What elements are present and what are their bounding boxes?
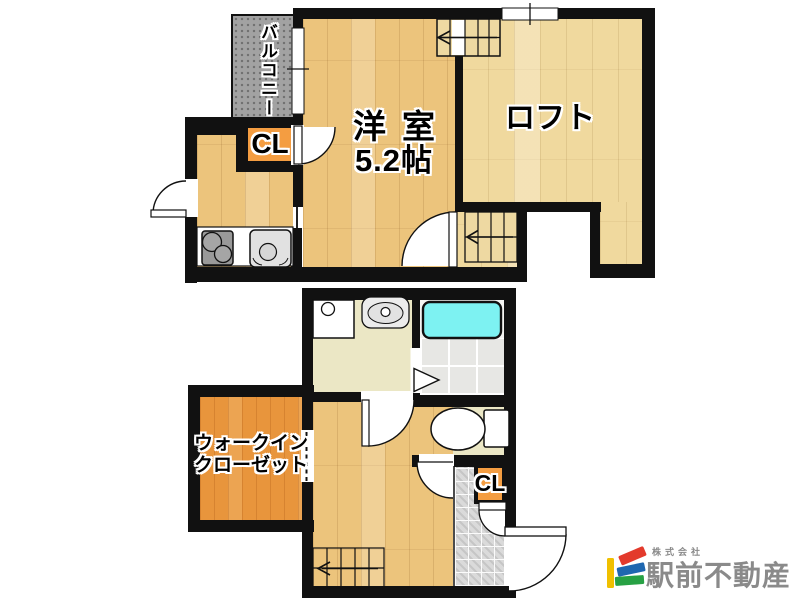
stairs-1f	[313, 548, 384, 588]
door-closet-1f	[479, 502, 506, 536]
walk-in-closet-label-line2: クローゼット	[192, 456, 310, 476]
western-room-size-label: 5.2帖	[309, 145, 479, 178]
window-loft-top	[502, 3, 558, 25]
logo-mark	[607, 546, 647, 588]
door-stairwell-2f	[402, 212, 457, 267]
washbasin-icon	[362, 297, 409, 328]
door-front-entrance	[505, 527, 566, 591]
toilet-icon	[431, 408, 509, 450]
balcony-label: バルコニー	[252, 22, 276, 118]
door-entry-2f	[151, 179, 198, 217]
stairs-2f-down	[465, 212, 517, 262]
western-room-name-label: 洋室	[309, 110, 479, 145]
window-balcony	[287, 28, 309, 114]
floor-plan-page: バルコニー CL 洋室 5.2帖 ロフト ウォークイン クローゼット CL 株式…	[0, 0, 800, 600]
door-toilet	[417, 454, 454, 498]
door-washroom	[361, 391, 414, 446]
washing-machine-pan-icon	[313, 300, 354, 338]
kitchen-counter	[197, 227, 293, 267]
logo-bar-blue	[616, 562, 645, 577]
loft-label: ロフト	[490, 103, 610, 135]
door-bathroom	[411, 348, 440, 393]
plan-symbols-overlay	[0, 0, 800, 600]
stairs-loft	[437, 19, 500, 56]
walk-in-closet-label-line1: ウォークイン	[192, 434, 310, 454]
logo-bar-yellow	[607, 558, 614, 588]
logo-company-name: 駅前不動産	[646, 554, 791, 594]
bathtub-icon	[423, 302, 501, 338]
closet-1f-label: CL	[472, 471, 508, 495]
closet-2f-label: CL	[246, 129, 294, 158]
logo-bar-green	[615, 575, 645, 586]
